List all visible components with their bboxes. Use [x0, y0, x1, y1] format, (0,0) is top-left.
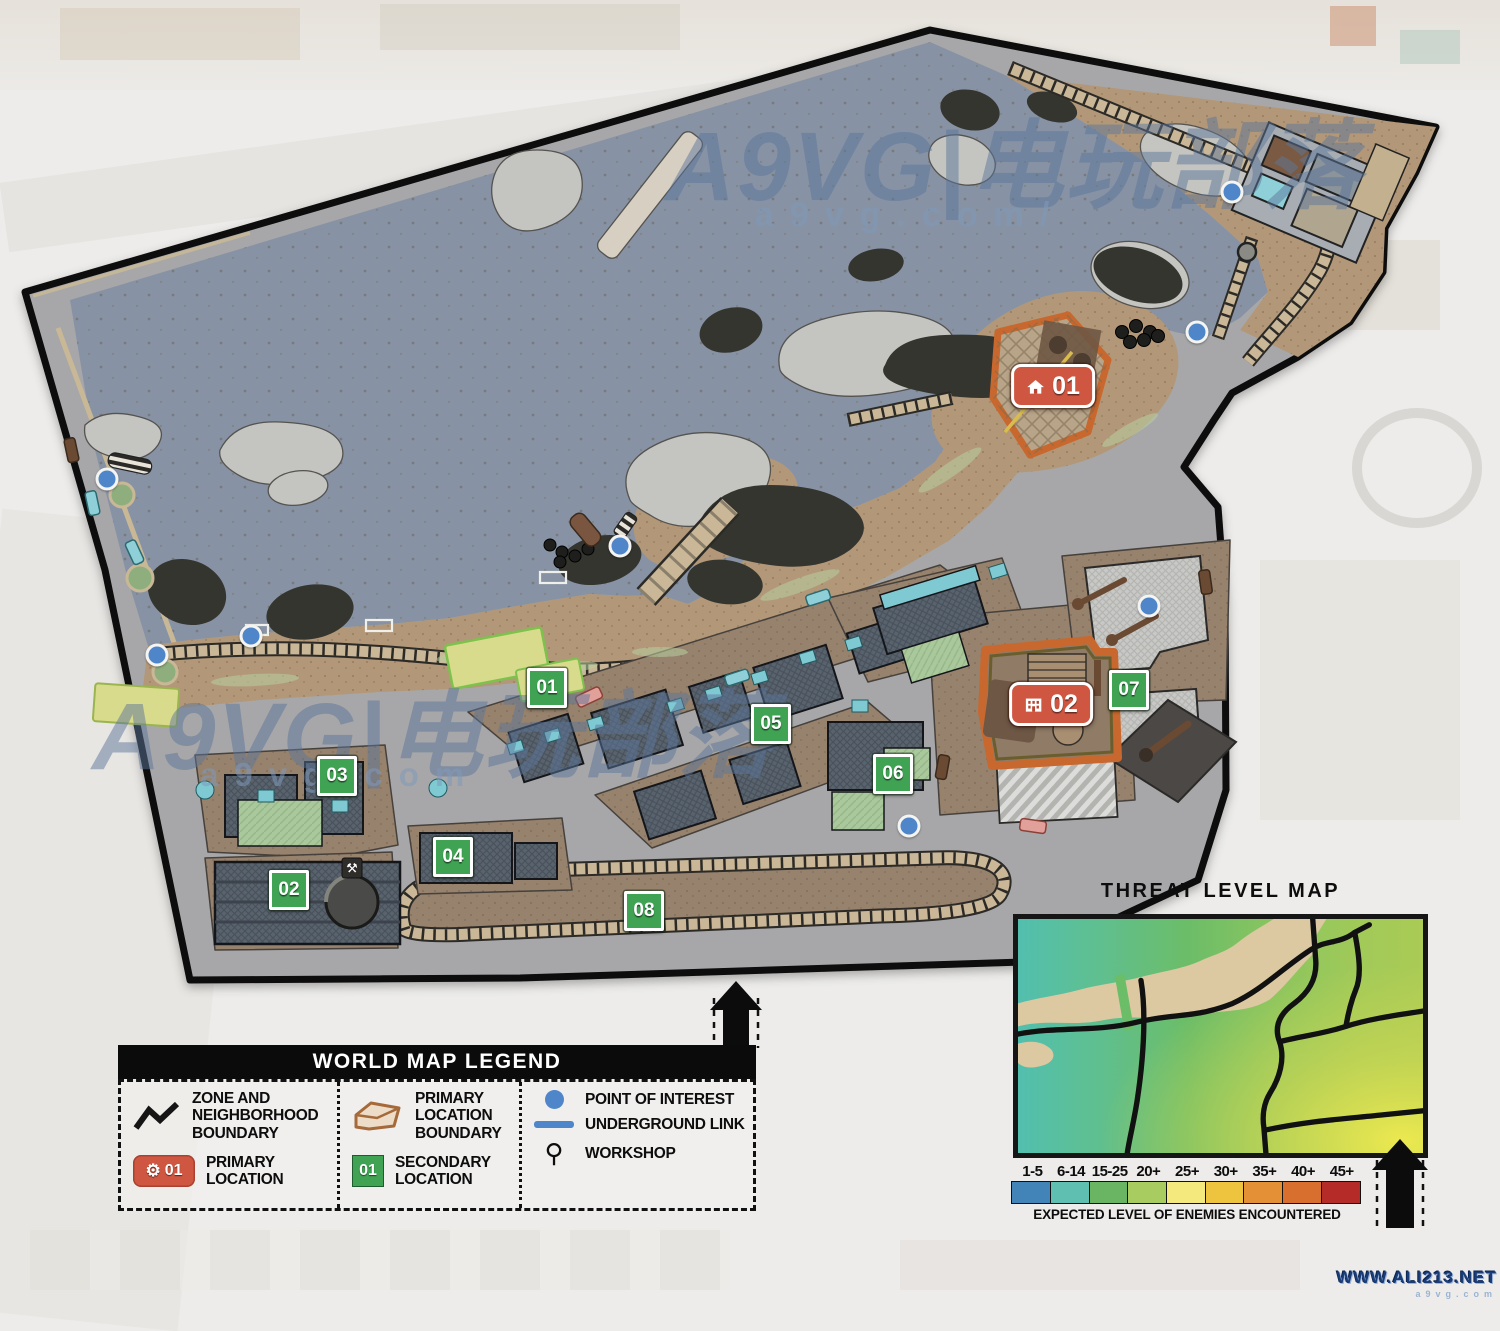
- pill-number: 01: [165, 1162, 183, 1180]
- threat-scale-swatch: [1282, 1181, 1322, 1204]
- world-map-legend: WORLD MAP LEGEND ZONE AND NEIGHBORHOOD B…: [118, 1045, 756, 1211]
- secondary-location-marker-06: 06: [873, 754, 913, 794]
- primary-location-pill-icon: ⚙01: [133, 1155, 195, 1187]
- secondary-location-marker-05: 05: [751, 704, 791, 744]
- threat-map-graphic: [1018, 919, 1423, 1153]
- point-of-interest-dot: [240, 625, 263, 648]
- primary-location-marker-02: 02: [1009, 682, 1093, 726]
- legend-item-label: WORKSHOP: [585, 1145, 745, 1162]
- point-of-interest-dot: [1221, 181, 1244, 204]
- threat-scale-swatch: [1243, 1181, 1283, 1204]
- primary-marker-number: 02: [1050, 690, 1078, 719]
- north-arrow: [1366, 1136, 1434, 1232]
- threat-scale: 1-56-1415-2520+25+30+35+40+45+: [1013, 1163, 1361, 1204]
- threat-scale-label: 35+: [1245, 1163, 1284, 1181]
- legend-item-label: UNDERGROUND LINK: [585, 1116, 745, 1133]
- secondary-location-marker-08: 08: [624, 891, 664, 931]
- threat-scale-label: 30+: [1206, 1163, 1245, 1181]
- legend-item-secondary-location: 01 SECONDARY LOCATION: [352, 1154, 519, 1189]
- legend-item-poi: POINT OF INTEREST: [534, 1090, 753, 1109]
- legend-body: ZONE AND NEIGHBORHOOD BOUNDARY ⚙01 PRIMA…: [118, 1079, 756, 1211]
- legend-column-3: POINT OF INTEREST UNDERGROUND LINK ⚲ WOR…: [519, 1082, 753, 1208]
- legend-title: WORLD MAP LEGEND: [118, 1045, 756, 1079]
- site-watermark: WWW.ALI213.NET a9vg.com: [1337, 1268, 1497, 1299]
- legend-column-2: PRIMARY LOCATION BOUNDARY 01 SECONDARY L…: [337, 1082, 519, 1208]
- secondary-location-marker-04: 04: [433, 837, 473, 877]
- threat-scale-label: 1-5: [1013, 1163, 1052, 1181]
- primary-marker-number: 01: [1052, 372, 1080, 401]
- house-icon: [1026, 378, 1045, 395]
- legend-column-1: ZONE AND NEIGHBORHOOD BOUNDARY ⚙01 PRIMA…: [121, 1082, 337, 1208]
- threat-scale-label: 25+: [1168, 1163, 1207, 1181]
- secondary-location-marker-07: 07: [1109, 670, 1149, 710]
- threat-map-box: [1013, 914, 1428, 1158]
- secondary-location-marker-02: 02: [269, 870, 309, 910]
- threat-scale-swatch: [1205, 1181, 1245, 1204]
- threat-scale-cell: 1-5: [1013, 1163, 1052, 1204]
- gear-icon: ⚙: [145, 1161, 160, 1181]
- primary-location-marker-01: 01: [1011, 364, 1095, 408]
- legend-item-workshop: ⚲ WORKSHOP: [534, 1140, 753, 1166]
- threat-map-title: THREAT LEVEL MAP: [1013, 880, 1428, 903]
- point-of-interest-dot: [96, 468, 119, 491]
- secondary-location-marker-01: 01: [527, 668, 567, 708]
- threat-scale-cell: 25+: [1168, 1163, 1207, 1204]
- point-of-interest-dot: [609, 535, 632, 558]
- threat-scale-cell: 20+: [1129, 1163, 1168, 1204]
- threat-scale-swatch: [1321, 1181, 1361, 1204]
- threat-scale-cell: 45+: [1322, 1163, 1361, 1204]
- threat-scale-caption: EXPECTED LEVEL OF ENEMIES ENCOUNTERED: [1013, 1207, 1361, 1222]
- legend-item-label: POINT OF INTEREST: [585, 1091, 745, 1108]
- game-map-screenshot: { "watermarks": { "brand_top": "A9VG|电玩部…: [0, 0, 1500, 1298]
- workshop-map-icon: ⚒: [342, 858, 363, 879]
- building-icon: [1024, 696, 1043, 713]
- underground-link-icon: [534, 1121, 574, 1128]
- north-arrow: [700, 980, 772, 1048]
- site-watermark-text: WWW.ALI213.NET: [1337, 1268, 1497, 1288]
- legend-item-label: ZONE AND NEIGHBORHOOD BOUNDARY: [192, 1090, 310, 1142]
- point-of-interest-dot: [1186, 321, 1209, 344]
- legend-item-primary-boundary: PRIMARY LOCATION BOUNDARY: [352, 1090, 519, 1142]
- threat-scale-swatch: [1050, 1181, 1090, 1204]
- threat-scale-cell: 30+: [1206, 1163, 1245, 1204]
- threat-scale-cell: 15-25: [1090, 1163, 1129, 1204]
- point-of-interest-dot: [1138, 595, 1161, 618]
- legend-item-label: PRIMARY LOCATION: [206, 1154, 324, 1189]
- threat-scale-cell: 35+: [1245, 1163, 1284, 1204]
- threat-scale-swatch: [1011, 1181, 1051, 1204]
- poi-dot-icon: [534, 1090, 574, 1109]
- legend-item-primary-location: ⚙01 PRIMARY LOCATION: [133, 1154, 337, 1189]
- legend-item-label: PRIMARY LOCATION BOUNDARY: [415, 1090, 519, 1142]
- legend-item-zone-boundary: ZONE AND NEIGHBORHOOD BOUNDARY: [133, 1090, 337, 1142]
- threat-scale-label: 40+: [1284, 1163, 1323, 1181]
- threat-scale-swatch: [1089, 1181, 1129, 1204]
- threat-scale-label: 20+: [1129, 1163, 1168, 1181]
- secondary-location-square-icon: 01: [352, 1155, 384, 1187]
- secondary-location-marker-03: 03: [317, 756, 357, 796]
- threat-scale-label: 6-14: [1052, 1163, 1091, 1181]
- legend-item-underground-link: UNDERGROUND LINK: [534, 1116, 753, 1133]
- threat-scale-cell: 40+: [1284, 1163, 1323, 1204]
- primary-boundary-polygon-icon: [352, 1099, 404, 1133]
- point-of-interest-dot: [146, 644, 169, 667]
- threat-scale-swatch: [1127, 1181, 1167, 1204]
- threat-scale-label: 15-25: [1090, 1163, 1129, 1181]
- zigzag-line-icon: [133, 1098, 181, 1134]
- threat-scale-swatch: [1166, 1181, 1206, 1204]
- threat-scale-label: 45+: [1322, 1163, 1361, 1181]
- threat-scale-cell: 6-14: [1052, 1163, 1091, 1204]
- workshop-tools-icon: ⚲: [534, 1140, 574, 1166]
- point-of-interest-dot: [898, 815, 921, 838]
- legend-item-label: SECONDARY LOCATION: [395, 1154, 513, 1189]
